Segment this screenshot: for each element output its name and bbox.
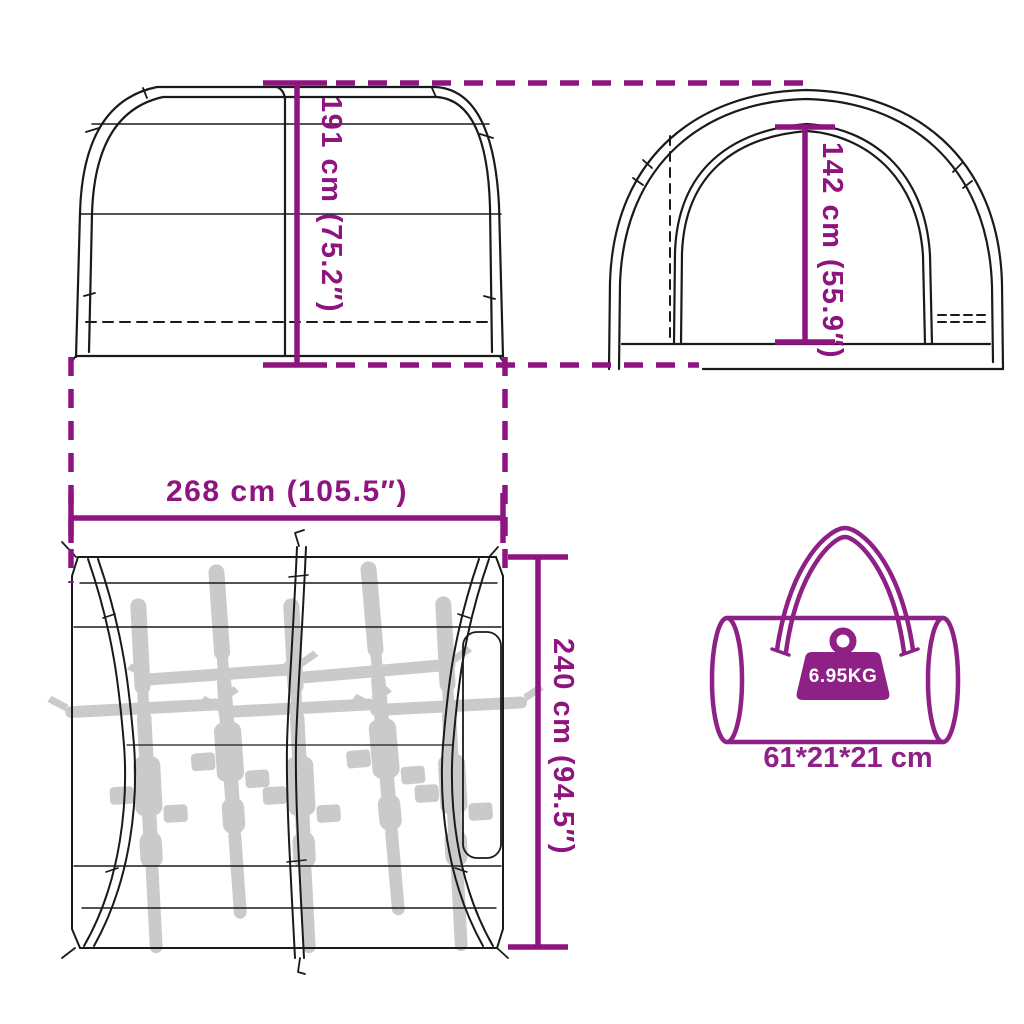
front-vent-dashes <box>938 315 985 322</box>
projection-guide-lines <box>71 83 806 583</box>
tent-top-view <box>42 530 557 974</box>
topview-side-door <box>463 632 501 858</box>
bag-size-label: 61*21*21 cm <box>698 742 998 775</box>
product-dimension-diagram: 191 cm (75.2″) 142 cm (55.9″) 268 cm (10… <box>0 0 1024 1024</box>
side-center-seam <box>277 87 285 356</box>
bike-silhouettes <box>42 553 557 958</box>
diagram-canvas <box>0 0 1024 1024</box>
side-height-label: 191 cm (75.2″) <box>316 96 345 313</box>
bag-end-left <box>712 618 742 742</box>
bag-end-right <box>928 618 958 742</box>
top-width-label: 268 cm (105.5″) <box>120 477 454 507</box>
topview-left-pole-inner <box>94 559 135 946</box>
weight-icon-ring <box>833 631 853 651</box>
carry-bag <box>712 528 958 742</box>
side-inner-profile <box>89 97 492 352</box>
side-pole-ticks <box>84 88 495 299</box>
tent-side-view <box>70 87 505 365</box>
side-outer-profile <box>76 87 503 357</box>
front-height-label: 142 cm (55.9″) <box>817 142 846 359</box>
bag-weight-label: 6.95KG <box>793 666 893 688</box>
top-depth-label: 240 cm (94.5″) <box>548 638 577 855</box>
